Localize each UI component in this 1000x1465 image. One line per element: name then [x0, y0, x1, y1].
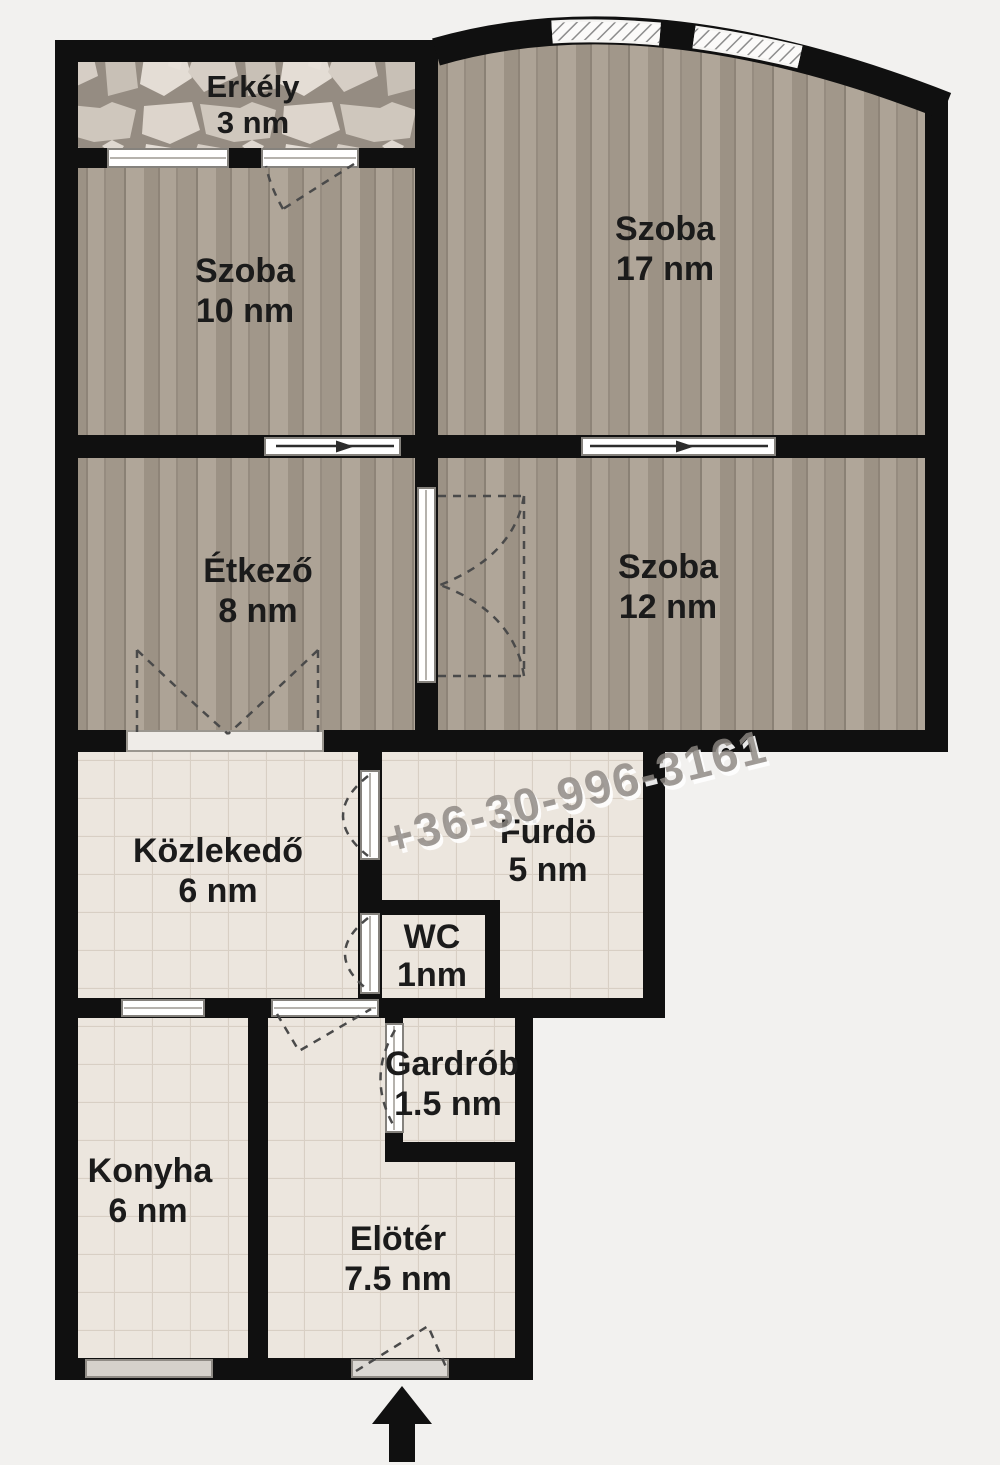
room-area-gardrob: 1.5 nm	[394, 1085, 502, 1123]
room-label-kozlekedo: Közlekedő	[133, 832, 303, 870]
wall-outer-left	[55, 40, 78, 1380]
room-label-szoba12: Szoba	[618, 548, 719, 586]
room-label-etkezo: Étkező	[203, 552, 313, 590]
room-label-konyha: Konyha	[88, 1152, 214, 1190]
room-area-szoba10: 10 nm	[196, 292, 294, 330]
entrance-door-sill	[352, 1360, 448, 1377]
room-label-szoba10: Szoba	[195, 252, 296, 290]
wall-konyha-eloter	[248, 998, 268, 1380]
room-area-eloter: 7.5 nm	[344, 1260, 452, 1298]
room-label-eloter: Elötér	[350, 1220, 446, 1258]
room-area-szoba17: 17 nm	[616, 250, 714, 288]
room-label-szoba17: Szoba	[615, 210, 716, 248]
wall-erkely-top	[55, 40, 438, 62]
room-area-wc: 1nm	[397, 956, 467, 994]
room-area-kozlekedo: 6 nm	[178, 872, 257, 910]
wall-outer-right-top	[925, 96, 948, 752]
room-area-erkely: 3 nm	[217, 105, 289, 140]
room-label-wc: WC	[404, 918, 461, 956]
wall-gardrob-bottom	[385, 1142, 533, 1162]
wall-wc-right	[485, 900, 500, 998]
entrance-arrow-shaft	[389, 1424, 415, 1462]
wall-wc-top	[358, 900, 500, 915]
etkezo-double-door-sill	[127, 731, 323, 751]
room-label-erkely: Erkély	[206, 69, 300, 104]
room-area-szoba12: 12 nm	[619, 588, 717, 626]
room-area-konyha: 6 nm	[108, 1192, 187, 1230]
arch-window-left	[552, 31, 660, 34]
konyha-bottom-window	[86, 1360, 212, 1377]
room-area-etkezo: 8 nm	[218, 592, 297, 630]
floor-plan-page: Erkély 3 nm Szoba 10 nm Szoba 17 nm Étke…	[0, 0, 1000, 1465]
room-area-furdo: 5 nm	[508, 851, 587, 889]
wall-upper-divider	[55, 435, 948, 458]
floor-plan: Erkély 3 nm Szoba 10 nm Szoba 17 nm Étke…	[0, 0, 1000, 1465]
room-label-gardrob: Gardrób	[385, 1045, 519, 1083]
